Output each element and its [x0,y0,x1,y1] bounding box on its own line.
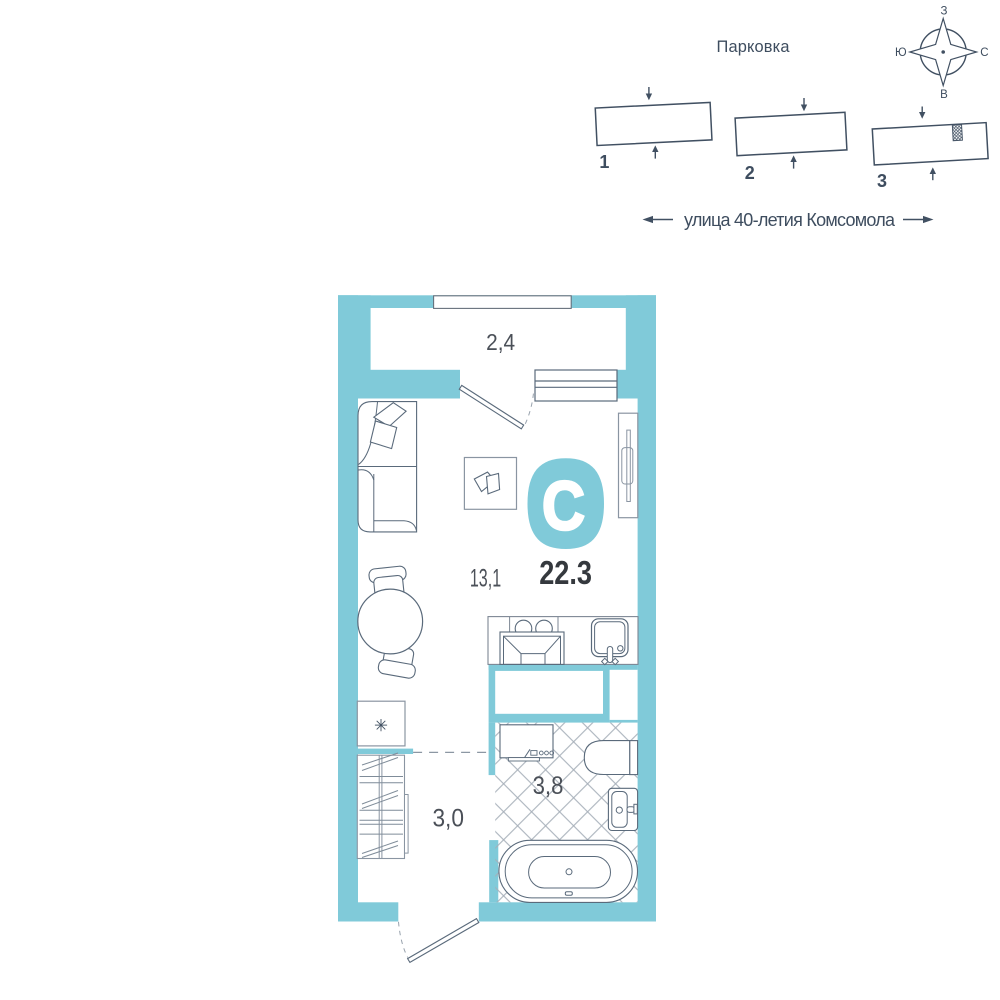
svg-text:1: 1 [599,152,609,172]
svg-text:22.3: 22.3 [539,554,592,591]
svg-text:улица 40-летия Комсомола: улица 40-летия Комсомола [684,210,896,230]
svg-text:З: З [941,6,948,18]
svg-text:3: 3 [877,171,887,191]
svg-text:Парковка: Парковка [717,38,791,56]
svg-text:2,4: 2,4 [486,329,515,355]
svg-text:C: C [542,468,585,545]
svg-text:3,8: 3,8 [533,773,564,800]
svg-text:В: В [940,89,948,101]
svg-text:13,1: 13,1 [470,565,501,593]
svg-text:2: 2 [745,163,755,183]
svg-text:С: С [980,47,988,59]
svg-text:3,0: 3,0 [432,805,464,833]
svg-text:Ю: Ю [895,47,907,59]
